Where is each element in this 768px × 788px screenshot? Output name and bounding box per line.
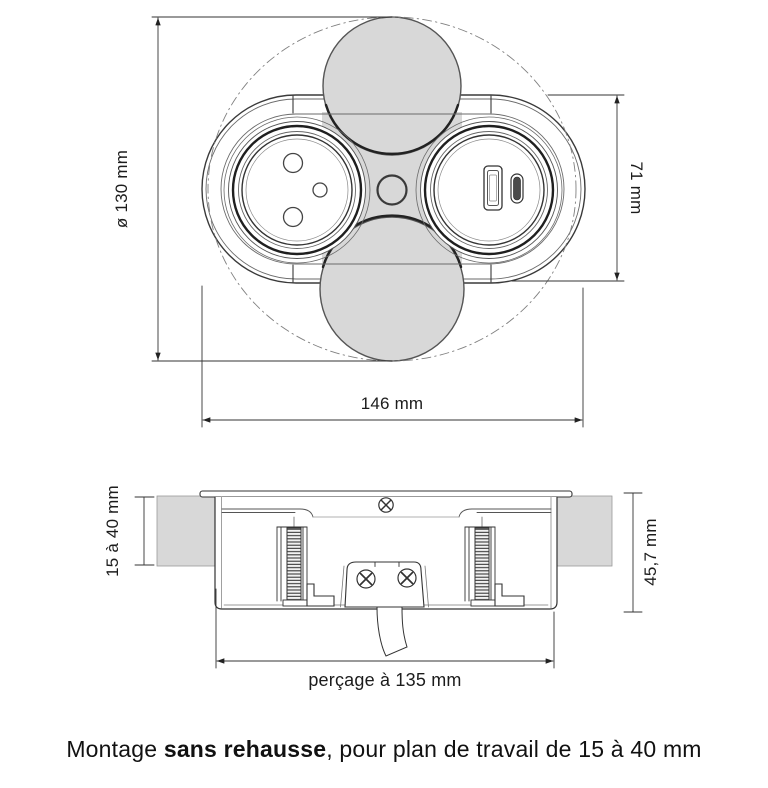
width-146-label: 146 mm — [361, 394, 424, 413]
top-fixing-screw — [379, 498, 393, 512]
height-71-label: 71 mm — [627, 162, 646, 215]
drill-label: perçage à 135 mm — [308, 670, 461, 690]
caption: Montage sans rehausse, pour plan de trav… — [0, 736, 768, 763]
cable-clamp-screw-left — [357, 570, 375, 588]
unit-flange — [200, 491, 572, 497]
top-view: ø 130 mm 71 mm 146 mm — [112, 17, 646, 427]
technical-drawing-page: ø 130 mm 71 mm 146 mm — [0, 0, 768, 788]
diameter-label: ø 130 mm — [112, 150, 131, 228]
dimension-worktop-thickness — [135, 497, 154, 565]
threaded-rod-right — [475, 528, 489, 600]
worktop-right — [557, 496, 612, 566]
caption-suffix: , pour plan de travail de 15 à 40 mm — [326, 736, 701, 762]
caption-emphasis: sans rehausse — [164, 736, 326, 762]
technical-drawing: ø 130 mm 71 mm 146 mm — [0, 0, 768, 788]
unit-height-label: 45,7 mm — [641, 518, 660, 586]
cable-clamp-screw-right — [398, 569, 416, 587]
cable-strap — [377, 607, 407, 656]
worktop-thickness-label: 15 à 40 mm — [103, 485, 122, 577]
usb-c-port — [511, 174, 523, 203]
caption-prefix: Montage — [66, 736, 164, 762]
worktop-left — [157, 496, 215, 566]
threaded-rod-left — [287, 528, 301, 600]
dimension-unit-height — [624, 493, 642, 612]
usb-a-port — [484, 166, 502, 210]
center-release-button — [378, 176, 407, 205]
side-view: 15 à 40 mm 45,7 mm perçage à 135 mm — [103, 485, 660, 690]
